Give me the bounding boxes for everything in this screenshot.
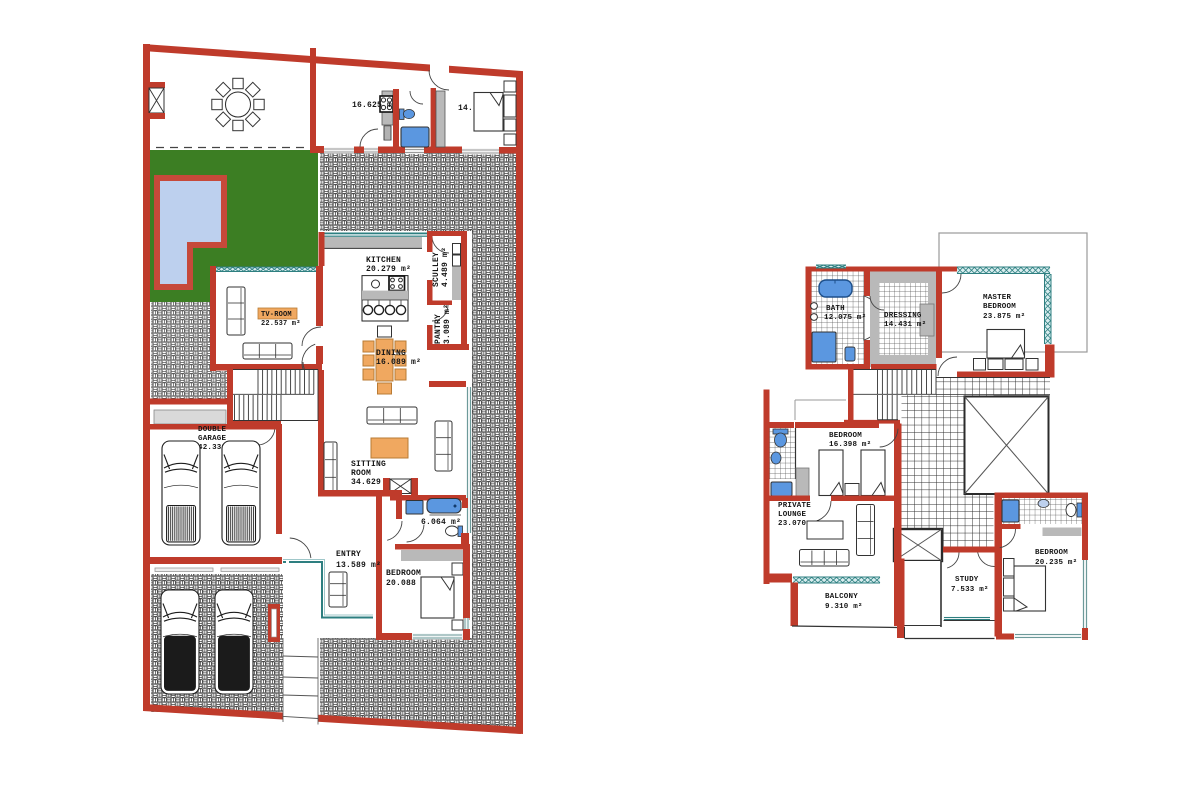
svg-text:BALCONY: BALCONY <box>825 593 858 601</box>
svg-text:22.537 m²: 22.537 m² <box>261 320 301 328</box>
svg-text:PANTRY: PANTRY <box>434 314 443 344</box>
svg-text:STUDY: STUDY <box>955 576 979 584</box>
svg-text:SCULLEY: SCULLEY <box>432 252 441 287</box>
svg-text:DINING: DINING <box>376 349 406 358</box>
svg-text:BEDROOM: BEDROOM <box>983 303 1016 311</box>
svg-text:BEDROOM: BEDROOM <box>829 432 862 440</box>
svg-text:ROOM: ROOM <box>351 469 371 478</box>
svg-text:16.398 m²: 16.398 m² <box>829 440 871 449</box>
svg-text:16.625 m²: 16.625 m² <box>352 101 397 110</box>
svg-text:9.310 m²: 9.310 m² <box>825 602 863 611</box>
svg-text:SITTING: SITTING <box>351 460 386 469</box>
svg-text:PRIVATE: PRIVATE <box>778 502 811 510</box>
svg-text:23.875 m²: 23.875 m² <box>983 312 1025 321</box>
svg-text:BEDROOM: BEDROOM <box>386 569 421 578</box>
svg-text:6.064 m²: 6.064 m² <box>421 518 461 527</box>
svg-text:20.279 m²: 20.279 m² <box>366 265 411 274</box>
svg-text:TV-ROOM: TV-ROOM <box>261 311 292 319</box>
svg-text:16.089 m²: 16.089 m² <box>376 358 421 367</box>
svg-text:12.075 m²: 12.075 m² <box>824 313 866 322</box>
svg-text:3.089 m²: 3.089 m² <box>443 304 452 344</box>
svg-text:LOUNGE: LOUNGE <box>778 511 807 519</box>
svg-text:ENTRY: ENTRY <box>336 550 361 559</box>
svg-text:4.489 m²: 4.489 m² <box>441 247 450 287</box>
svg-text:BEDROOM: BEDROOM <box>1035 549 1068 557</box>
svg-text:DRESSING: DRESSING <box>884 312 922 320</box>
svg-text:7.533 m²: 7.533 m² <box>951 585 989 594</box>
svg-text:DOUBLE: DOUBLE <box>198 426 227 434</box>
svg-text:MASTER: MASTER <box>983 294 1012 302</box>
svg-text:KITCHEN: KITCHEN <box>366 256 401 265</box>
svg-text:13.589 m²: 13.589 m² <box>336 561 381 570</box>
svg-text:GARAGE: GARAGE <box>198 435 227 443</box>
svg-text:14.431 m²: 14.431 m² <box>884 320 926 329</box>
svg-text:BATH: BATH <box>826 305 845 313</box>
